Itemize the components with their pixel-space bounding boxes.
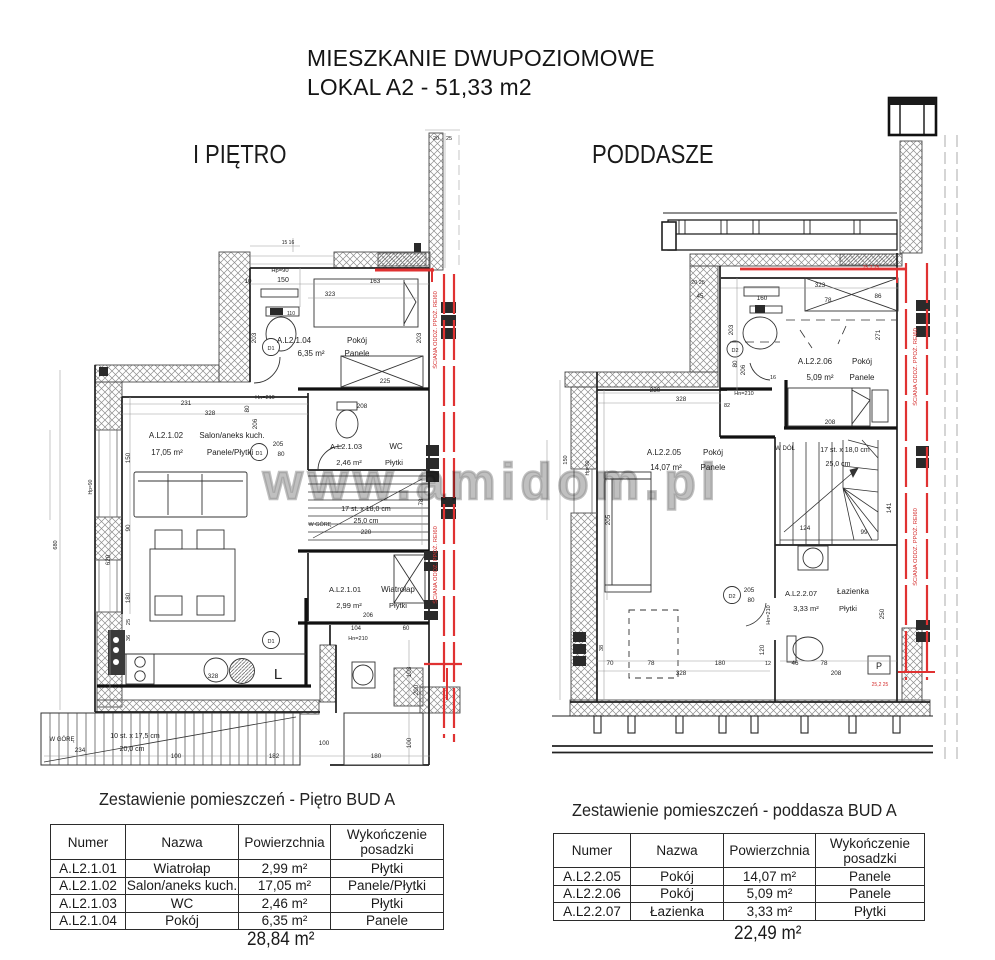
svg-text:ŚCIANA ODDZ. PPOŻ. REI60: ŚCIANA ODDZ. PPOŻ. REI60 bbox=[431, 291, 439, 369]
svg-text:ŚCIANA ODDZ. PPOŻ. REI60: ŚCIANA ODDZ. PPOŻ. REI60 bbox=[911, 328, 919, 406]
svg-text:20,0 cm: 20,0 cm bbox=[120, 746, 145, 753]
svg-text:180: 180 bbox=[125, 592, 132, 603]
svg-text:Hn=210: Hn=210 bbox=[734, 391, 753, 397]
svg-text:20: 20 bbox=[433, 136, 439, 142]
svg-text:Łazienka: Łazienka bbox=[837, 587, 870, 596]
svg-text:100: 100 bbox=[406, 737, 413, 748]
svg-text:206: 206 bbox=[363, 613, 374, 619]
svg-text:25,0 cm: 25,0 cm bbox=[826, 461, 851, 468]
svg-text:208: 208 bbox=[357, 403, 368, 410]
svg-text:L: L bbox=[274, 666, 282, 683]
svg-text:80: 80 bbox=[747, 597, 755, 604]
svg-text:15 16: 15 16 bbox=[282, 240, 295, 246]
svg-text:10: 10 bbox=[244, 278, 252, 285]
svg-text:Panele: Panele bbox=[345, 349, 370, 358]
svg-text:220: 220 bbox=[361, 529, 372, 536]
svg-text:141: 141 bbox=[886, 502, 893, 513]
svg-text:46: 46 bbox=[791, 660, 799, 667]
svg-text:70: 70 bbox=[606, 660, 614, 667]
svg-text:WC: WC bbox=[389, 442, 403, 451]
svg-text:D1: D1 bbox=[267, 346, 274, 352]
svg-text:20 25: 20 25 bbox=[691, 280, 705, 286]
svg-text:Hn=210: Hn=210 bbox=[255, 395, 274, 401]
svg-text:203: 203 bbox=[416, 332, 423, 343]
svg-text:36: 36 bbox=[126, 635, 132, 641]
svg-text:Panele/Płytki: Panele/Płytki bbox=[207, 448, 253, 457]
svg-text:Wiatrołap: Wiatrołap bbox=[381, 585, 415, 594]
svg-text:Płytki: Płytki bbox=[839, 604, 857, 613]
svg-text:D1: D1 bbox=[255, 451, 262, 457]
svg-text:25: 25 bbox=[446, 136, 452, 142]
svg-text:A.L2.1.01: A.L2.1.01 bbox=[329, 585, 361, 594]
svg-text:206: 206 bbox=[252, 418, 259, 429]
svg-text:124: 124 bbox=[800, 525, 811, 532]
svg-text:180: 180 bbox=[371, 753, 382, 760]
svg-text:231: 231 bbox=[181, 400, 192, 407]
svg-text:5,09 m²: 5,09 m² bbox=[806, 373, 833, 382]
svg-text:328: 328 bbox=[205, 410, 216, 417]
svg-text:225: 225 bbox=[380, 378, 391, 385]
svg-text:206: 206 bbox=[740, 364, 747, 375]
svg-text:180: 180 bbox=[715, 660, 726, 667]
svg-text:205: 205 bbox=[744, 587, 755, 594]
svg-text:3,33 m²: 3,33 m² bbox=[793, 604, 819, 613]
svg-text:182: 182 bbox=[269, 753, 280, 760]
svg-text:203: 203 bbox=[728, 324, 735, 335]
svg-text:17 st. x 18,0 cm: 17 st. x 18,0 cm bbox=[820, 447, 870, 454]
svg-text:103: 103 bbox=[406, 666, 413, 677]
svg-text:328: 328 bbox=[676, 396, 687, 403]
svg-text:Hn=210: Hn=210 bbox=[766, 605, 772, 624]
svg-text:Salon/aneks kuch.: Salon/aneks kuch. bbox=[199, 431, 264, 440]
svg-text:P: P bbox=[876, 661, 882, 671]
svg-text:10 st. x 17,5 cm: 10 st. x 17,5 cm bbox=[110, 733, 160, 740]
svg-text:16: 16 bbox=[770, 375, 776, 381]
svg-text:100: 100 bbox=[171, 753, 182, 760]
svg-text:110: 110 bbox=[287, 311, 295, 317]
svg-text:ŚCIANA ODDZ. PPOŻ. REI60: ŚCIANA ODDZ. PPOŻ. REI60 bbox=[911, 508, 919, 586]
svg-text:A.L2.2.07: A.L2.2.07 bbox=[785, 589, 817, 598]
svg-text:12: 12 bbox=[765, 661, 771, 667]
svg-text:Hp=90: Hp=90 bbox=[271, 268, 288, 274]
svg-text:163: 163 bbox=[370, 278, 381, 285]
svg-text:208: 208 bbox=[831, 670, 842, 677]
svg-text:W GÓRĘ: W GÓRĘ bbox=[309, 521, 332, 528]
svg-text:328: 328 bbox=[676, 670, 687, 677]
svg-text:203: 203 bbox=[251, 332, 258, 343]
svg-text:ŚCIANA ODDZ. PPOŻ. REI60: ŚCIANA ODDZ. PPOŻ. REI60 bbox=[431, 526, 439, 604]
svg-text:W GÓRĘ: W GÓRĘ bbox=[50, 736, 75, 743]
svg-text:60: 60 bbox=[403, 626, 410, 632]
svg-text:25 2,25: 25 2,25 bbox=[863, 265, 880, 271]
svg-text:17,05 m²: 17,05 m² bbox=[151, 448, 183, 457]
svg-text:78: 78 bbox=[820, 660, 828, 667]
svg-text:Hn=210: Hn=210 bbox=[348, 636, 367, 642]
svg-text:6,35 m²: 6,35 m² bbox=[297, 349, 324, 358]
svg-text:250: 250 bbox=[879, 608, 886, 619]
svg-text:W DÓŁ: W DÓŁ bbox=[775, 445, 795, 452]
svg-text:80: 80 bbox=[732, 360, 739, 368]
svg-text:25,2 25: 25,2 25 bbox=[872, 682, 889, 688]
svg-text:Panele: Panele bbox=[850, 373, 875, 382]
svg-text:38: 38 bbox=[599, 645, 605, 651]
svg-text:Hp=90: Hp=90 bbox=[88, 479, 94, 494]
svg-text:150: 150 bbox=[277, 277, 289, 284]
svg-text:323: 323 bbox=[325, 291, 336, 298]
svg-text:200: 200 bbox=[413, 684, 420, 695]
svg-text:Płytki: Płytki bbox=[389, 601, 407, 610]
svg-text:A.L2.1.02: A.L2.1.02 bbox=[149, 431, 184, 440]
svg-text:620: 620 bbox=[105, 554, 112, 565]
svg-text:78: 78 bbox=[824, 297, 832, 304]
svg-text:82: 82 bbox=[724, 403, 730, 409]
svg-text:A.L2.1.04: A.L2.1.04 bbox=[277, 336, 312, 345]
svg-text:2,99 m²: 2,99 m² bbox=[336, 601, 362, 610]
svg-text:A.L2.1.03: A.L2.1.03 bbox=[330, 442, 362, 451]
svg-text:99: 99 bbox=[860, 529, 868, 536]
svg-text:D2: D2 bbox=[728, 594, 735, 600]
svg-text:86: 86 bbox=[874, 293, 882, 300]
svg-text:A.L2.2.06: A.L2.2.06 bbox=[798, 357, 833, 366]
svg-text:D2: D2 bbox=[731, 348, 738, 354]
svg-text:45: 45 bbox=[696, 293, 704, 300]
svg-text:205: 205 bbox=[273, 441, 284, 448]
svg-text:78: 78 bbox=[647, 660, 655, 667]
svg-text:208: 208 bbox=[825, 419, 836, 426]
svg-text:80: 80 bbox=[244, 405, 251, 413]
svg-text:323: 323 bbox=[815, 282, 826, 289]
svg-text:160: 160 bbox=[757, 295, 768, 302]
svg-text:100: 100 bbox=[319, 740, 330, 747]
svg-text:120: 120 bbox=[759, 644, 766, 655]
svg-text:150: 150 bbox=[125, 452, 132, 463]
svg-text:Pokój: Pokój bbox=[852, 357, 872, 366]
svg-text:25: 25 bbox=[126, 619, 132, 625]
svg-text:D1: D1 bbox=[267, 639, 274, 645]
svg-text:234: 234 bbox=[75, 747, 86, 754]
svg-text:680: 680 bbox=[53, 540, 59, 549]
svg-text:Pokój: Pokój bbox=[347, 336, 367, 345]
svg-text:90: 90 bbox=[125, 524, 132, 532]
svg-text:25,0 cm: 25,0 cm bbox=[354, 518, 379, 525]
svg-text:230: 230 bbox=[650, 387, 661, 394]
svg-text:205: 205 bbox=[605, 514, 612, 525]
svg-text:328: 328 bbox=[208, 673, 219, 680]
svg-text:271: 271 bbox=[875, 329, 882, 340]
svg-text:104: 104 bbox=[351, 626, 362, 632]
